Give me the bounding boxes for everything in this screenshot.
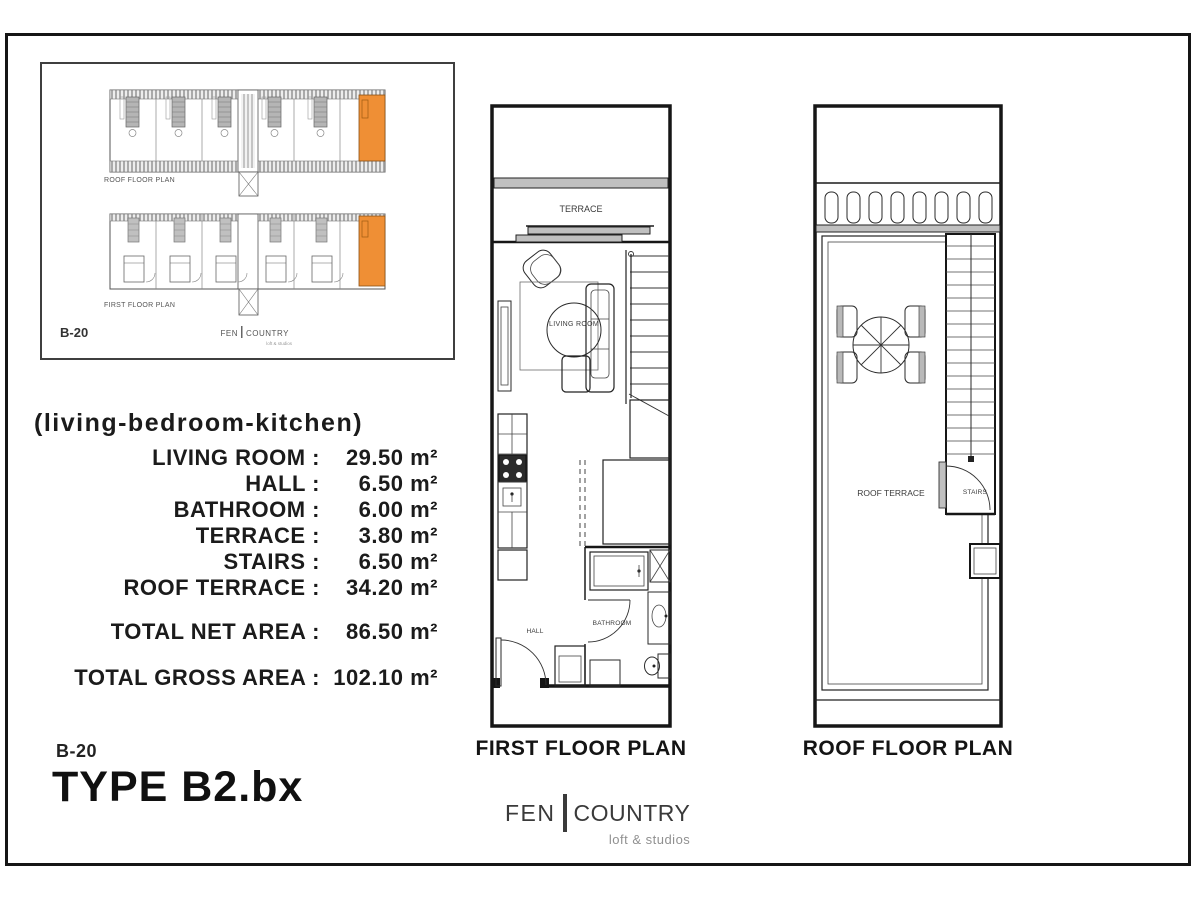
- area-table: (living-bedroom-kitchen) LIVING ROOM : 2…: [30, 409, 438, 691]
- area-value: 6.50 m²: [320, 549, 438, 575]
- ff-kitchen: [498, 414, 527, 580]
- key-plan-first-floor-strip: FIRST FLOOR PLAN: [104, 214, 385, 315]
- first-floor-plan-drawing: TERRACE LIVING ROOM: [490, 104, 672, 728]
- logo-fen-text: FEN: [505, 800, 556, 827]
- outdoor-table-icon: [853, 317, 909, 373]
- rf-stair-enclosure: STAIRS: [939, 234, 995, 514]
- key-plan-logo-country: COUNTRY: [246, 329, 289, 338]
- total-label: TOTAL NET AREA :: [30, 619, 320, 645]
- area-value: 6.00 m²: [320, 497, 438, 523]
- stove-icon: [499, 455, 526, 482]
- bed-icon: [603, 460, 670, 544]
- corner-shower-icon: [650, 550, 670, 582]
- ff-stairs: [626, 250, 669, 416]
- rf-roof-terrace-label: ROOF TERRACE: [857, 488, 925, 498]
- key-plan-logo-tagline: loft & studios: [266, 341, 293, 346]
- area-value: 6.50 m²: [320, 471, 438, 497]
- rf-shaft: [970, 544, 1000, 578]
- rf-pergola: [816, 192, 1000, 232]
- ff-terrace-label: TERRACE: [559, 204, 602, 214]
- area-label: ROOF TERRACE :: [30, 575, 320, 601]
- wardrobe-icon: [630, 400, 670, 458]
- key-plan-mini-logo: FEN COUNTRY loft & studios: [221, 326, 293, 346]
- key-plan-logo-fen: FEN: [221, 329, 239, 338]
- area-row-living-room: LIVING ROOM : 29.50 m²: [30, 445, 438, 471]
- total-net-area-row: TOTAL NET AREA : 86.50 m²: [30, 619, 438, 645]
- brand-logo: FEN COUNTRY loft & studios: [505, 794, 690, 847]
- ff-bathroom: BATHROOM: [555, 550, 670, 686]
- ff-hall-label: HALL: [526, 628, 543, 635]
- key-plan-box: ROOF FLOOR PLAN FIRST FLOOR PLAN B-20 FE…: [40, 62, 455, 360]
- ff-terrace: TERRACE: [494, 178, 668, 242]
- total-label: TOTAL GROSS AREA :: [30, 665, 320, 691]
- ff-bed-area: [603, 400, 670, 544]
- area-row-hall: HALL : 6.50 m²: [30, 471, 438, 497]
- key-plan-highlighted-unit-first: [359, 216, 385, 286]
- roof-floor-plan-title: ROOF FLOOR PLAN: [798, 737, 1018, 761]
- area-rows: LIVING ROOM : 29.50 m² HALL : 6.50 m² BA…: [30, 445, 438, 601]
- area-value: 3.80 m²: [320, 523, 438, 549]
- area-label: LIVING ROOM :: [30, 445, 320, 471]
- unit-code-label: B-20: [56, 741, 97, 762]
- area-value: 34.20 m²: [320, 575, 438, 601]
- sink-icon: [503, 488, 521, 506]
- area-label: TERRACE :: [30, 523, 320, 549]
- total-value: 102.10 m²: [320, 665, 438, 691]
- total-gross-area-row: TOTAL GROSS AREA : 102.10 m²: [30, 665, 438, 691]
- key-plan-roof-strip: ROOF FLOOR PLAN: [104, 90, 385, 196]
- key-plan-unit-code: B-20: [60, 325, 88, 340]
- area-row-roof-terrace: ROOF TERRACE : 34.20 m²: [30, 575, 438, 601]
- first-floor-plan-title: FIRST FLOOR PLAN: [471, 737, 691, 761]
- tv-console-icon: [498, 301, 511, 391]
- key-plan-first-label: FIRST FLOOR PLAN: [104, 302, 175, 309]
- washer-icon: [555, 646, 585, 686]
- ff-living-room-label: LIVING ROOM: [549, 321, 599, 328]
- key-plan-roof-label: ROOF FLOOR PLAN: [104, 177, 175, 184]
- area-row-terrace: TERRACE : 3.80 m²: [30, 523, 438, 549]
- area-label: BATHROOM :: [30, 497, 320, 523]
- area-subtitle: (living-bedroom-kitchen): [30, 409, 438, 438]
- ff-bathroom-label: BATHROOM: [593, 620, 632, 627]
- area-label: HALL :: [30, 471, 320, 497]
- logo-divider-bar: [563, 794, 567, 832]
- bathtub-icon: [590, 552, 648, 590]
- area-label: STAIRS :: [30, 549, 320, 575]
- shower-tray-icon: [590, 660, 620, 686]
- ff-living-room: LIVING ROOM: [498, 247, 614, 392]
- area-row-bathroom: BATHROOM : 6.00 m²: [30, 497, 438, 523]
- area-value: 29.50 m²: [320, 445, 438, 471]
- key-plan-drawing: ROOF FLOOR PLAN FIRST FLOOR PLAN B-20 FE…: [42, 64, 453, 358]
- ff-walls: [492, 106, 670, 726]
- toilet-icon: [645, 654, 671, 678]
- roof-floor-plan-drawing: ROOF TERRACE STAIRS: [813, 104, 1003, 728]
- logo-tagline: loft & studios: [505, 832, 690, 847]
- ff-loft-edge: [580, 460, 585, 548]
- rf-stairs-label: STAIRS: [963, 489, 988, 496]
- total-value: 86.50 m²: [320, 619, 438, 645]
- sofa-icon: [562, 284, 614, 392]
- logo-country-text: COUNTRY: [574, 800, 691, 827]
- area-row-stairs: STAIRS : 6.50 m²: [30, 549, 438, 575]
- unit-type-title: TYPE B2.bx: [52, 763, 303, 812]
- entrance-door-icon: [496, 638, 546, 686]
- vanity-sink-icon: [648, 592, 670, 644]
- key-plan-highlighted-unit-roof: [359, 95, 385, 161]
- armchair-icon: [520, 247, 565, 292]
- ff-hall: HALL: [496, 628, 546, 686]
